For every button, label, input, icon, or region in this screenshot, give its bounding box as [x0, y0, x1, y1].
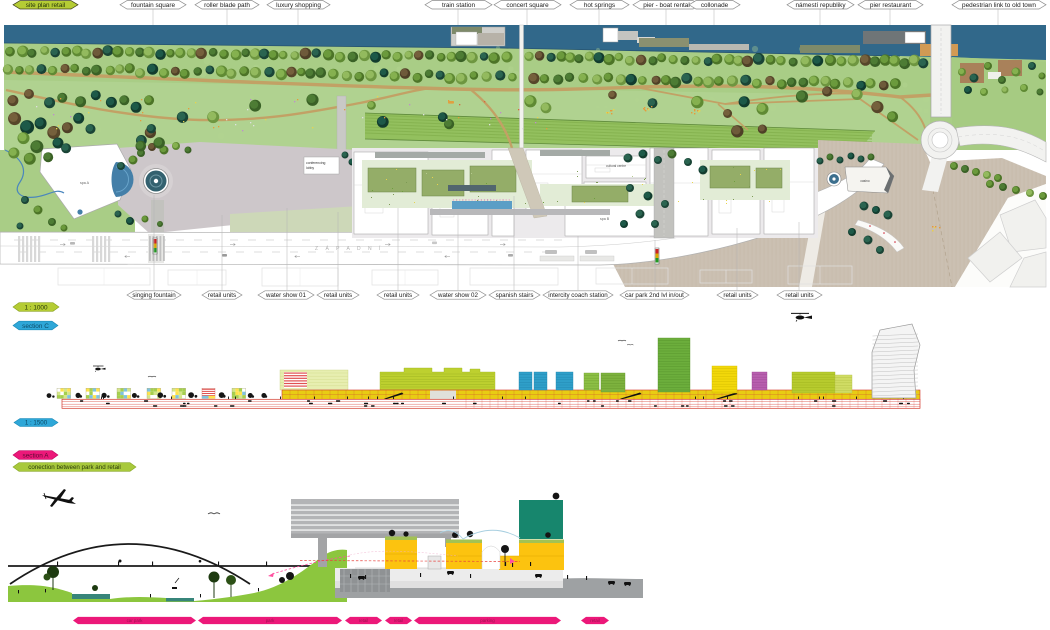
- svg-text:train station: train station: [442, 2, 475, 9]
- svg-text:conection between park and ret: conection between park and retail: [28, 464, 121, 471]
- svg-text:conferencing: conferencing: [306, 161, 326, 165]
- svg-text:roller blade path: roller blade path: [204, 2, 250, 9]
- svg-text:lobby: lobby: [306, 166, 314, 170]
- svg-text:retail: retail: [394, 618, 404, 623]
- svg-text:site plan retail: site plan retail: [26, 2, 65, 9]
- svg-text:collonade: collonade: [701, 2, 729, 9]
- svg-text:section C: section C: [22, 323, 49, 330]
- svg-text:retail units: retail units: [208, 292, 236, 299]
- svg-text:intercity coach station: intercity coach station: [548, 292, 608, 299]
- svg-text:singing fountain: singing fountain: [132, 292, 176, 299]
- svg-text:car park 2nd lvl in/out: car park 2nd lvl in/out: [625, 292, 684, 299]
- svg-text:retail units: retail units: [324, 292, 352, 299]
- svg-text:hot springs: hot springs: [584, 2, 615, 9]
- svg-text:retail: retail: [359, 618, 369, 623]
- svg-text:luxury shopping: luxury shopping: [276, 2, 321, 9]
- svg-text:pedestrian link to old town: pedestrian link to old town: [962, 2, 1036, 9]
- svg-text:casino: casino: [860, 179, 869, 183]
- svg-text:námestí republiky: námestí republiky: [795, 2, 846, 9]
- svg-text:1 : 1500: 1 : 1500: [25, 420, 48, 427]
- svg-text:concert square: concert square: [506, 2, 549, 9]
- svg-text:parking: parking: [480, 618, 495, 623]
- svg-text:spa B: spa B: [600, 217, 610, 221]
- svg-text:cultural centre: cultural centre: [606, 164, 626, 168]
- svg-text:water show 01: water show 01: [265, 292, 306, 299]
- svg-text:retail units: retail units: [384, 292, 412, 299]
- svg-text:fountain square: fountain square: [131, 2, 176, 9]
- svg-text:spanish stairs: spanish stairs: [496, 292, 534, 299]
- svg-text:pier restaurant: pier restaurant: [870, 2, 911, 9]
- svg-text:1 : 1000: 1 : 1000: [24, 304, 48, 311]
- svg-text:retail: retail: [590, 618, 600, 623]
- svg-text:section A: section A: [23, 452, 50, 459]
- svg-text:spa A: spa A: [80, 181, 90, 185]
- svg-text:water show 02: water show 02: [437, 292, 478, 299]
- svg-text:car park: car park: [127, 618, 144, 623]
- svg-text:Z Á P A D N Í: Z Á P A D N Í: [315, 245, 383, 252]
- svg-text:park: park: [266, 618, 275, 623]
- svg-text:retail units: retail units: [785, 292, 813, 299]
- svg-text:pier - boat rental: pier - boat rental: [643, 2, 690, 9]
- svg-text:retail units: retail units: [723, 292, 751, 299]
